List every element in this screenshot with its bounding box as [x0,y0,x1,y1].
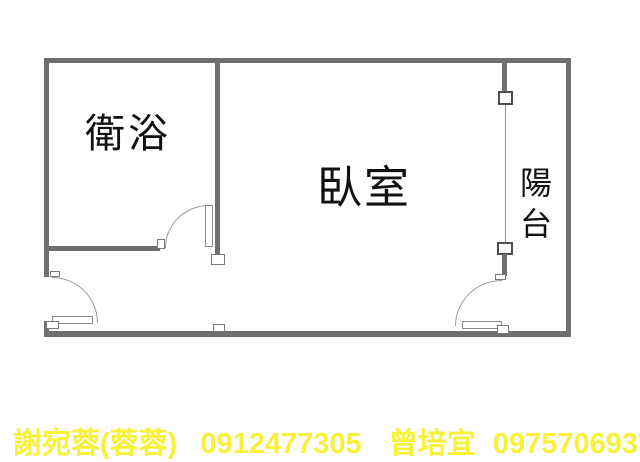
bathroom-door-jamb [157,239,165,249]
bathroom-label: 衛浴 [85,114,171,154]
floor-plan: 衛浴 臥室 陽台 [0,0,640,461]
bedroom-label: 臥室 [317,165,411,210]
wall-bottom [44,331,571,337]
balcony-window-box-upper [498,91,513,105]
wall-balcony-stub-top [502,61,507,92]
wall-left-upper [44,58,49,277]
agent2-phone: 0975706937 [493,428,640,461]
entry-door-hinge-box [46,321,59,329]
agent1-phone: 0912477305 [200,428,361,461]
wall-bathroom-bottom [44,246,160,251]
balcony-door-arc [455,280,502,326]
balcony-partition-line [505,105,506,243]
contact-bar: 謝宛蓉(蓉蓉) 0912477305 曾培宜 0975706937 [13,420,640,462]
bottom-wall-cap [213,324,225,332]
balcony-door-leaf [462,321,502,329]
wall-balcony-stub-mid [502,254,507,276]
wall-right [566,58,571,337]
wall-top [44,58,571,63]
wall-bathroom-divider [215,58,220,255]
balcony-door-hinge-box [497,325,509,334]
agent1-name: 謝宛蓉(蓉蓉) [13,420,177,462]
bathroom-divider-end-cap [211,254,225,265]
balcony-label: 陽台 [518,166,550,248]
bathroom-door-leaf [205,205,213,247]
agent2-name: 曾培宜 [389,420,476,462]
bathroom-door-arc [165,205,209,248]
